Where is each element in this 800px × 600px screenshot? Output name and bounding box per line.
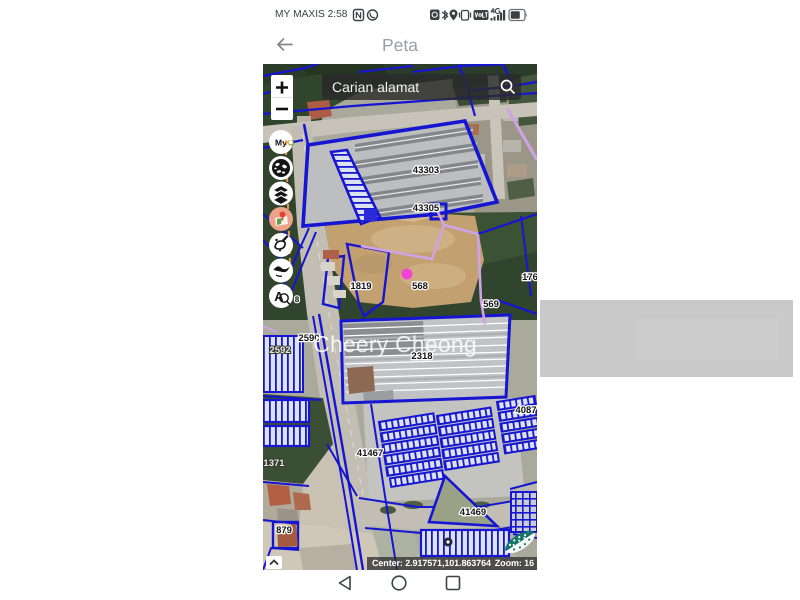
svg-text:41467: 41467 — [357, 448, 383, 459]
svg-text:43305: 43305 — [413, 203, 440, 214]
svg-text:43303: 43303 — [413, 165, 439, 176]
svg-text:2592: 2592 — [269, 345, 290, 356]
svg-text:41469: 41469 — [460, 507, 486, 518]
svg-text:J: J — [290, 139, 294, 148]
svg-text:569: 569 — [483, 299, 499, 310]
svg-text:1371: 1371 — [263, 458, 285, 469]
svg-text:4087: 4087 — [515, 405, 536, 416]
svg-text:879: 879 — [276, 525, 292, 536]
svg-text:Cheery Cheong: Cheery Cheong — [313, 331, 477, 357]
svg-text:568: 568 — [412, 281, 428, 292]
svg-text:1819: 1819 — [350, 281, 371, 292]
svg-text:176: 176 — [522, 272, 537, 283]
